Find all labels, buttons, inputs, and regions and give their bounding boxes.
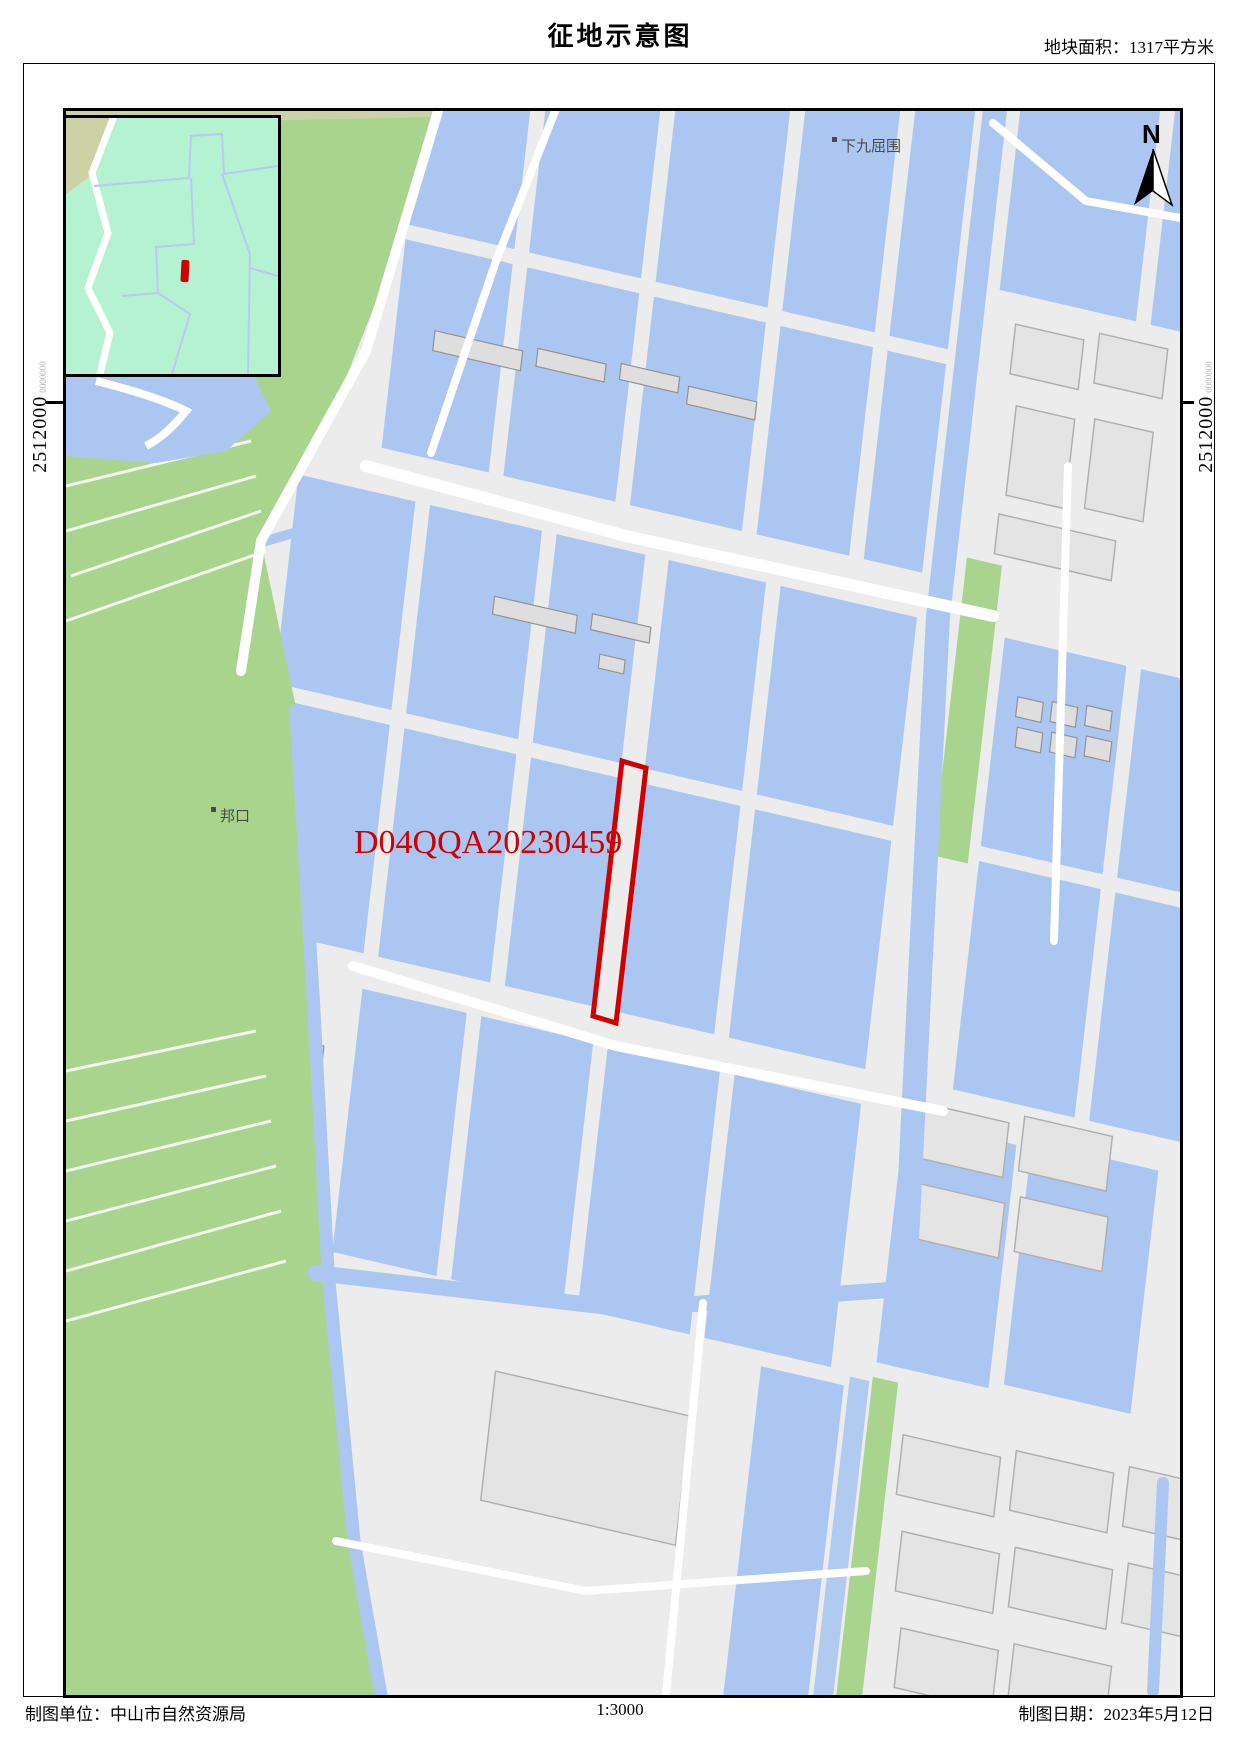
place-label-xiajiuquwei: 下九屈围: [841, 138, 901, 155]
inset-canvas: [64, 118, 278, 374]
grid-tick-left: [46, 401, 64, 404]
land-acquisition-map-page: 征地示意图 地块面积：1317平方米 2512000 0000000 25120…: [0, 0, 1240, 1754]
coordinate-left-decimals: 0000000: [38, 361, 48, 393]
inset-locator-map: [63, 115, 281, 377]
footer-date: 制图日期：2023年5月12日: [1019, 1700, 1215, 1725]
coordinate-right-decimals: 0000000: [1204, 361, 1214, 393]
coordinate-label-left: 2512000 0000000: [29, 342, 55, 492]
place-dot-icon: [211, 807, 216, 812]
footer: 制图单位：中山市自然资源局 1:3000 制图日期：2023年5月12日: [0, 1700, 1240, 1726]
north-label: N: [1142, 119, 1161, 149]
map-frame: D04QQA20230459 下九屈围 邦口 N: [63, 108, 1183, 1698]
coordinate-right-main: 2512000: [1195, 396, 1218, 473]
plot-area-label: 地块面积：1317平方米: [1044, 33, 1214, 58]
coordinate-left-main: 2512000: [29, 396, 52, 473]
coordinate-label-right: 2512000 0000000: [1195, 342, 1221, 492]
inset-parcel-marker: [180, 260, 189, 282]
place-label-bangkou: 邦口: [220, 808, 250, 825]
place-dot-icon: [832, 137, 837, 142]
parcel-id-label: D04QQA20230459: [354, 824, 622, 861]
